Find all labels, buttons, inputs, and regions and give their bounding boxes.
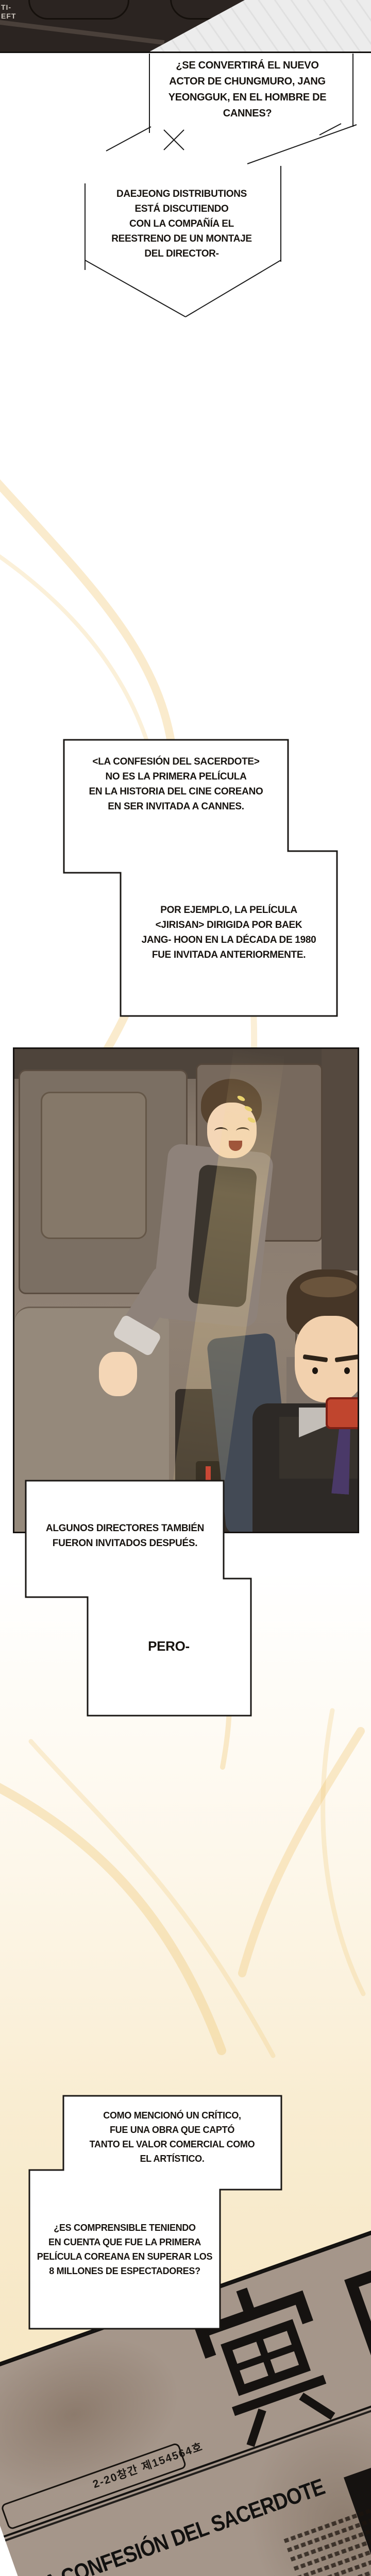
narration-line: <JIRISAN> DIRIGIDA POR BAEK (123, 918, 334, 933)
narration-line: NO ES LA PRIMERA PELÍCULA (66, 769, 285, 784)
narration-line: YEONGGUK, EN EL HOMBRE DE (147, 90, 348, 106)
narration-line: CON LA COMPAÑÍA EL (82, 216, 281, 231)
eyebrow (335, 1354, 359, 1363)
narration-bubble: <LA CONFESIÓN DEL SACERDOTE> NO ES LA PR… (66, 754, 285, 814)
eye (344, 1367, 350, 1374)
narration-bubble: ¿ES COMPRENSIBLE TENIENDO EN CUENTA QUE … (32, 2221, 217, 2278)
narration-bubble: ¿SE CONVERTIRÁ EL NUEVO ACTOR DE CHUNGMU… (147, 58, 348, 122)
narration-line: TANTO EL VALOR COMERCIAL COMO (66, 2137, 278, 2151)
car-interior-panel (13, 1047, 359, 1533)
narration-line: ¿SE CONVERTIRÁ EL NUEVO (147, 58, 348, 74)
narration-line: EL ARTÍSTICO. (66, 2151, 278, 2166)
man-surprised-face (295, 1316, 359, 1402)
newspaper-issue-bar: 2-20창간 제154564호 (1, 2442, 187, 2530)
shocked-open-mouth (326, 1397, 359, 1429)
speech-bubble-outline (23, 1478, 255, 1720)
narration-line: <LA CONFESIÓN DEL SACERDOTE> (66, 754, 285, 769)
sparkle-lines-effect (0, 0, 371, 361)
narration-line: ¿ES COMPRENSIBLE TENIENDO (32, 2221, 217, 2235)
narration-bubble: COMO MENCIONÓ UN CRÍTICO, FUE UNA OBRA Q… (66, 2108, 278, 2166)
narration-line: EN SER INVITADA A CANNES. (66, 799, 285, 814)
hair-highlight (300, 1277, 357, 1297)
narration-bubble: ALGUNOS DIRECTORES TAMBIÉN FUERON INVITA… (28, 1521, 222, 1551)
narration-line: FUE UNA OBRA QUE CAPTÓ (66, 2123, 278, 2137)
narration-line: JANG- HOON EN LA DÉCADA DE 1980 (123, 933, 334, 947)
narration-line: COMO MENCIONÓ UN CRÍTICO, (66, 2108, 278, 2123)
narration-line: PERO- (90, 1638, 247, 1654)
narration-bubble: PERO- (90, 1638, 247, 1654)
seat-panel (41, 1092, 147, 1239)
narration-line: ALGUNOS DIRECTORES TAMBIÉN (28, 1521, 222, 1536)
narration-line: CANNES? (147, 106, 348, 122)
narration-line: DEL DIRECTOR- (82, 246, 281, 261)
narration-bubble: POR EJEMPLO, LA PELÍCULA <JIRISAN> DIRIG… (123, 903, 334, 962)
narration-line: ACTOR DE CHUNGMURO, JANG (147, 74, 348, 90)
narration-line: POR EJEMPLO, LA PELÍCULA (123, 903, 334, 918)
narration-line: FUE INVITADA ANTERIORMENTE. (123, 947, 334, 962)
eye (312, 1367, 318, 1374)
narration-bubble: DAEJEONG DISTRIBUTIONS ESTÁ DISCUTIENDO … (82, 187, 281, 261)
narration-line: PELÍCULA COREANA EN SUPERAR LOS (32, 2249, 217, 2264)
door-post (322, 1049, 358, 1270)
webtoon-page: TI- EFT ¿SE CONVERTIRÁ EL NUEVO ACTOR DE… (0, 0, 371, 2576)
narration-line: 8 MILLONES DE ESPECTADORES? (32, 2264, 217, 2278)
man-smiling-hand (99, 1352, 137, 1396)
eyebrow (303, 1354, 328, 1363)
narration-line: DAEJEONG DISTRIBUTIONS (82, 187, 281, 201)
narration-line: EN LA HISTORIA DEL CINE COREANO (66, 784, 285, 799)
narration-line: EN CUENTA QUE FUE LA PRIMERA (32, 2235, 217, 2249)
narration-line: FUERON INVITADOS DESPUÉS. (28, 1536, 222, 1551)
narration-line: ESTÁ DISCUTIENDO (82, 201, 281, 216)
narration-line: REESTRENO DE UN MONTAJE (82, 231, 281, 246)
